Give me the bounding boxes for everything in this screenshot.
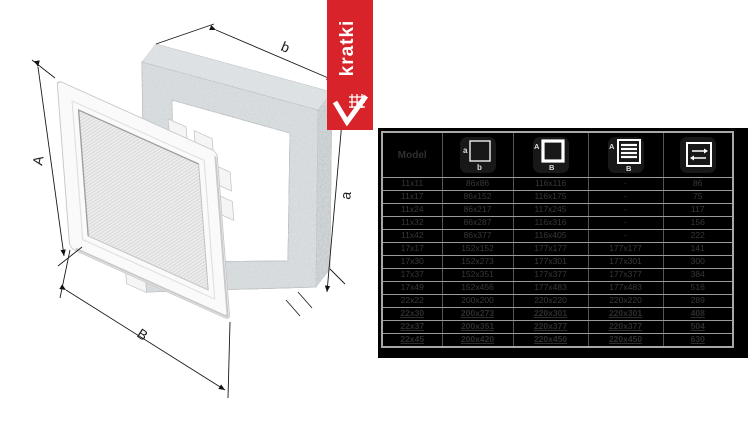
cell-area: 408 bbox=[663, 308, 733, 321]
external-dimensions-icon: A B bbox=[532, 136, 570, 174]
icon-label-A: A bbox=[534, 142, 540, 151]
table-row: 22x30200x273220x301220x301408 bbox=[382, 308, 733, 321]
cell-model: 11x42 bbox=[382, 230, 442, 243]
grille-dimensions-column-header: A B bbox=[588, 132, 663, 178]
cell-area: 504 bbox=[663, 321, 733, 334]
cell-external: 177x177 bbox=[513, 243, 588, 256]
cell-grille: 177x301 bbox=[588, 256, 663, 269]
cell-external: 220x377 bbox=[513, 321, 588, 334]
icon-label-B: B bbox=[549, 163, 555, 172]
table-row: 17x30152x273177x301177x301300 bbox=[382, 256, 733, 269]
dim-label-a: a bbox=[337, 190, 354, 200]
hole-dimensions-column-header: a b bbox=[442, 132, 513, 178]
cell-external: 177x483 bbox=[513, 282, 588, 295]
cell-model: 17x49 bbox=[382, 282, 442, 295]
kratki-logo-icon bbox=[331, 94, 369, 126]
cell-model: 22x37 bbox=[382, 321, 442, 334]
cell-model: 11x32 bbox=[382, 217, 442, 230]
dim-label-B: B bbox=[134, 325, 151, 344]
spec-table-body: 11x1186x86116x116-8611x1786x152116x175-7… bbox=[382, 178, 733, 348]
cell-hole: 152x456 bbox=[442, 282, 513, 295]
table-row: 22x45200x420220x450220x450630 bbox=[382, 334, 733, 348]
cell-area: 384 bbox=[663, 269, 733, 282]
cell-grille: - bbox=[588, 230, 663, 243]
cell-hole: 86x152 bbox=[442, 191, 513, 204]
cell-model: 22x45 bbox=[382, 334, 442, 348]
cell-hole: 200x200 bbox=[442, 295, 513, 308]
cell-area: 222 bbox=[663, 230, 733, 243]
cell-grille: 220x450 bbox=[588, 334, 663, 348]
cell-model: 11x24 bbox=[382, 204, 442, 217]
table-row: 11x3286x287116x316-156 bbox=[382, 217, 733, 230]
cell-external: 177x301 bbox=[513, 256, 588, 269]
technical-drawing: A B b a bbox=[0, 0, 375, 421]
brand-name: kratki bbox=[327, 0, 373, 96]
cell-external: 177x377 bbox=[513, 269, 588, 282]
cell-external: 220x450 bbox=[513, 334, 588, 348]
cell-area: 75 bbox=[663, 191, 733, 204]
cell-external: 116x175 bbox=[513, 191, 588, 204]
depth-dimension-ticks bbox=[286, 292, 312, 316]
icon-label-A: A bbox=[609, 142, 615, 151]
cell-external: 116x316 bbox=[513, 217, 588, 230]
cell-hole: 200x420 bbox=[442, 334, 513, 348]
cell-model: 22x22 bbox=[382, 295, 442, 308]
cell-grille: 177x483 bbox=[588, 282, 663, 295]
cell-external: 220x301 bbox=[513, 308, 588, 321]
cell-grille: - bbox=[588, 178, 663, 191]
cell-external: 116x116 bbox=[513, 178, 588, 191]
table-row: 17x37152x351177x377177x377384 bbox=[382, 269, 733, 282]
table-row: 22x37200x351220x377220x377504 bbox=[382, 321, 733, 334]
cell-grille: - bbox=[588, 204, 663, 217]
cell-hole: 152x273 bbox=[442, 256, 513, 269]
cell-external: 220x220 bbox=[513, 295, 588, 308]
cell-model: 22x30 bbox=[382, 308, 442, 321]
cell-external: 117x245 bbox=[513, 204, 588, 217]
table-row: 22x22200x200220x220220x220289 bbox=[382, 295, 733, 308]
cell-area: 516 bbox=[663, 282, 733, 295]
louvre-grille-dimensions-icon: A B bbox=[607, 136, 645, 174]
external-dimensions-column-header: A B bbox=[513, 132, 588, 178]
table-row: 17x17152x152177x177177x177141 bbox=[382, 243, 733, 256]
cell-area: 300 bbox=[663, 256, 733, 269]
cell-area: 141 bbox=[663, 243, 733, 256]
table-row: 11x2486x217117x245-117 bbox=[382, 204, 733, 217]
icon-label-B: B bbox=[626, 164, 632, 173]
cell-grille: 177x377 bbox=[588, 269, 663, 282]
cell-area: 630 bbox=[663, 334, 733, 348]
table-row: 11x1786x152116x175-75 bbox=[382, 191, 733, 204]
cell-grille: 220x301 bbox=[588, 308, 663, 321]
mounting-hole-dimensions-icon: a b bbox=[459, 136, 497, 174]
table-header-row: Model a b A bbox=[382, 132, 733, 178]
cell-hole: 200x273 bbox=[442, 308, 513, 321]
cell-model: 17x37 bbox=[382, 269, 442, 282]
icon-label-a: a bbox=[463, 146, 468, 155]
icon-label-b: b bbox=[477, 163, 482, 172]
cell-grille: 220x377 bbox=[588, 321, 663, 334]
table-row: 17x49152x456177x483177x483516 bbox=[382, 282, 733, 295]
cell-grille: 177x177 bbox=[588, 243, 663, 256]
cell-grille: - bbox=[588, 191, 663, 204]
cell-hole: 86x217 bbox=[442, 204, 513, 217]
cell-area: 156 bbox=[663, 217, 733, 230]
cell-external: 116x405 bbox=[513, 230, 588, 243]
model-column-header: Model bbox=[382, 132, 442, 178]
dim-label-b: b bbox=[279, 38, 293, 56]
cell-hole: 86x287 bbox=[442, 217, 513, 230]
cell-model: 11x11 bbox=[382, 178, 442, 191]
table-row: 11x1186x86116x116-86 bbox=[382, 178, 733, 191]
kratki-logo-banner: kratki bbox=[327, 0, 373, 130]
product-sheet: A B b a kratki Model bbox=[0, 0, 750, 421]
cell-area: 86 bbox=[663, 178, 733, 191]
cell-grille: - bbox=[588, 217, 663, 230]
cell-model: 17x17 bbox=[382, 243, 442, 256]
cell-area: 289 bbox=[663, 295, 733, 308]
dim-label-A: A bbox=[29, 154, 46, 167]
table-row: 11x4286x377116x405-222 bbox=[382, 230, 733, 243]
cell-model: 11x17 bbox=[382, 191, 442, 204]
cell-grille: 220x220 bbox=[588, 295, 663, 308]
cell-hole: 86x86 bbox=[442, 178, 513, 191]
airflow-area-column-header bbox=[663, 132, 733, 178]
dimensions-table: Model a b A bbox=[378, 128, 748, 358]
cell-hole: 152x152 bbox=[442, 243, 513, 256]
cell-hole: 200x351 bbox=[442, 321, 513, 334]
cell-hole: 86x377 bbox=[442, 230, 513, 243]
cell-hole: 152x351 bbox=[442, 269, 513, 282]
cell-area: 117 bbox=[663, 204, 733, 217]
cell-model: 17x30 bbox=[382, 256, 442, 269]
airflow-area-icon bbox=[679, 136, 717, 174]
